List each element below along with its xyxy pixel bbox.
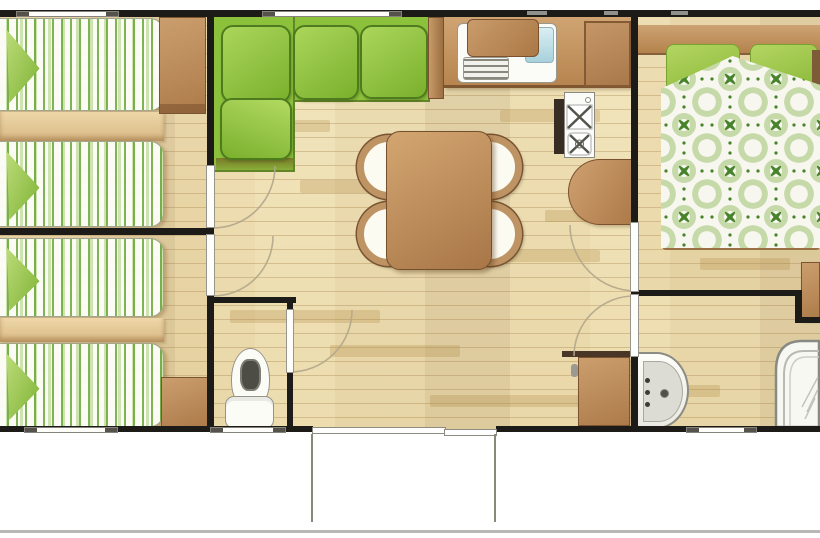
cabinet-bedroom-2	[161, 377, 208, 427]
door-master-bedroom	[630, 222, 639, 292]
dining-table	[386, 131, 492, 270]
wall-bathroom-top	[631, 290, 801, 296]
pillow	[5, 28, 41, 103]
fridge-cabinet	[584, 21, 631, 87]
wall-top	[0, 10, 820, 17]
half-round-worktop	[568, 159, 632, 225]
single-bed-3	[0, 238, 164, 317]
window-wc	[210, 427, 286, 433]
drain	[660, 389, 669, 398]
wall-bottom-right	[496, 426, 820, 432]
corner-shower	[772, 337, 820, 430]
gas-hob	[564, 92, 595, 158]
window-bathroom	[686, 427, 757, 433]
room-terrace	[313, 433, 495, 522]
cabinet-handle	[571, 364, 578, 377]
toilet-tank	[225, 396, 274, 429]
door-wc	[286, 309, 294, 373]
entrance-sliding-door	[312, 427, 446, 434]
wall-bathroom-jog-h	[795, 317, 820, 323]
wall-vent	[671, 11, 688, 15]
sofa-cushion	[360, 25, 428, 99]
terrace-edge-left	[311, 434, 313, 522]
bedside-shelf-1	[0, 112, 164, 141]
pillow	[5, 150, 41, 220]
hall-cabinet	[578, 357, 630, 426]
wall-vent	[527, 11, 547, 15]
cutting-board	[467, 19, 539, 57]
sofa-cushion	[293, 25, 359, 100]
pillow	[5, 246, 41, 311]
entrance-sliding-door	[444, 429, 497, 436]
wall-master	[631, 10, 638, 432]
sink-drainer	[463, 57, 509, 80]
faucet-dot	[645, 390, 650, 395]
wardrobe-bedroom-1	[159, 17, 206, 114]
floor-plan-canvas	[0, 0, 820, 538]
wall-wc-top	[207, 297, 296, 303]
wardrobe-master	[801, 262, 820, 320]
terrace-edge-right	[494, 434, 496, 522]
pillow	[5, 352, 41, 420]
door-bedroom-2	[206, 234, 215, 296]
wall-bedroom-divider	[0, 228, 214, 235]
toilet-seat-opening	[240, 359, 261, 391]
door-bedroom-1	[206, 165, 215, 228]
window-top-1	[16, 11, 119, 17]
double-bed-duvet	[661, 56, 820, 248]
faucet-dot	[645, 378, 650, 383]
door-bathroom	[630, 294, 639, 357]
bedside-shelf-2	[0, 318, 164, 342]
page-divider-line	[0, 530, 820, 533]
wall-vent	[604, 11, 618, 15]
sofa-cushion	[221, 25, 291, 103]
window-top-2	[262, 11, 402, 17]
faucet-dot	[645, 402, 650, 407]
window-bedroom-2	[24, 427, 118, 433]
sofa-side-table	[428, 17, 444, 99]
single-bed-1	[0, 18, 164, 111]
sofa-seat-cushion	[220, 98, 292, 160]
single-bed-4	[0, 343, 164, 427]
single-bed-2	[0, 141, 164, 227]
